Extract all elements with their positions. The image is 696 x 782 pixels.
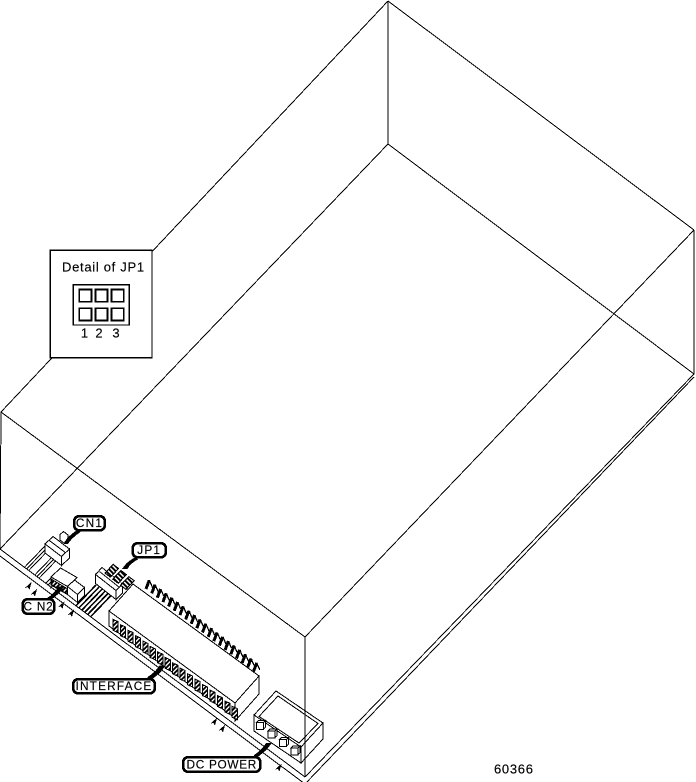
svg-text:CN1: CN1 <box>76 516 103 530</box>
svg-text:INTERFACE: INTERFACE <box>75 679 152 693</box>
svg-text:60366: 60366 <box>494 762 534 777</box>
svg-text:2: 2 <box>95 326 102 341</box>
svg-text:JP1: JP1 <box>137 543 161 557</box>
svg-text:DC POWER: DC POWER <box>187 758 257 772</box>
svg-text:1: 1 <box>81 326 88 341</box>
svg-text:C N2: C N2 <box>23 600 53 614</box>
svg-text:Detail of JP1: Detail of JP1 <box>62 260 145 275</box>
svg-text:3: 3 <box>112 326 119 341</box>
